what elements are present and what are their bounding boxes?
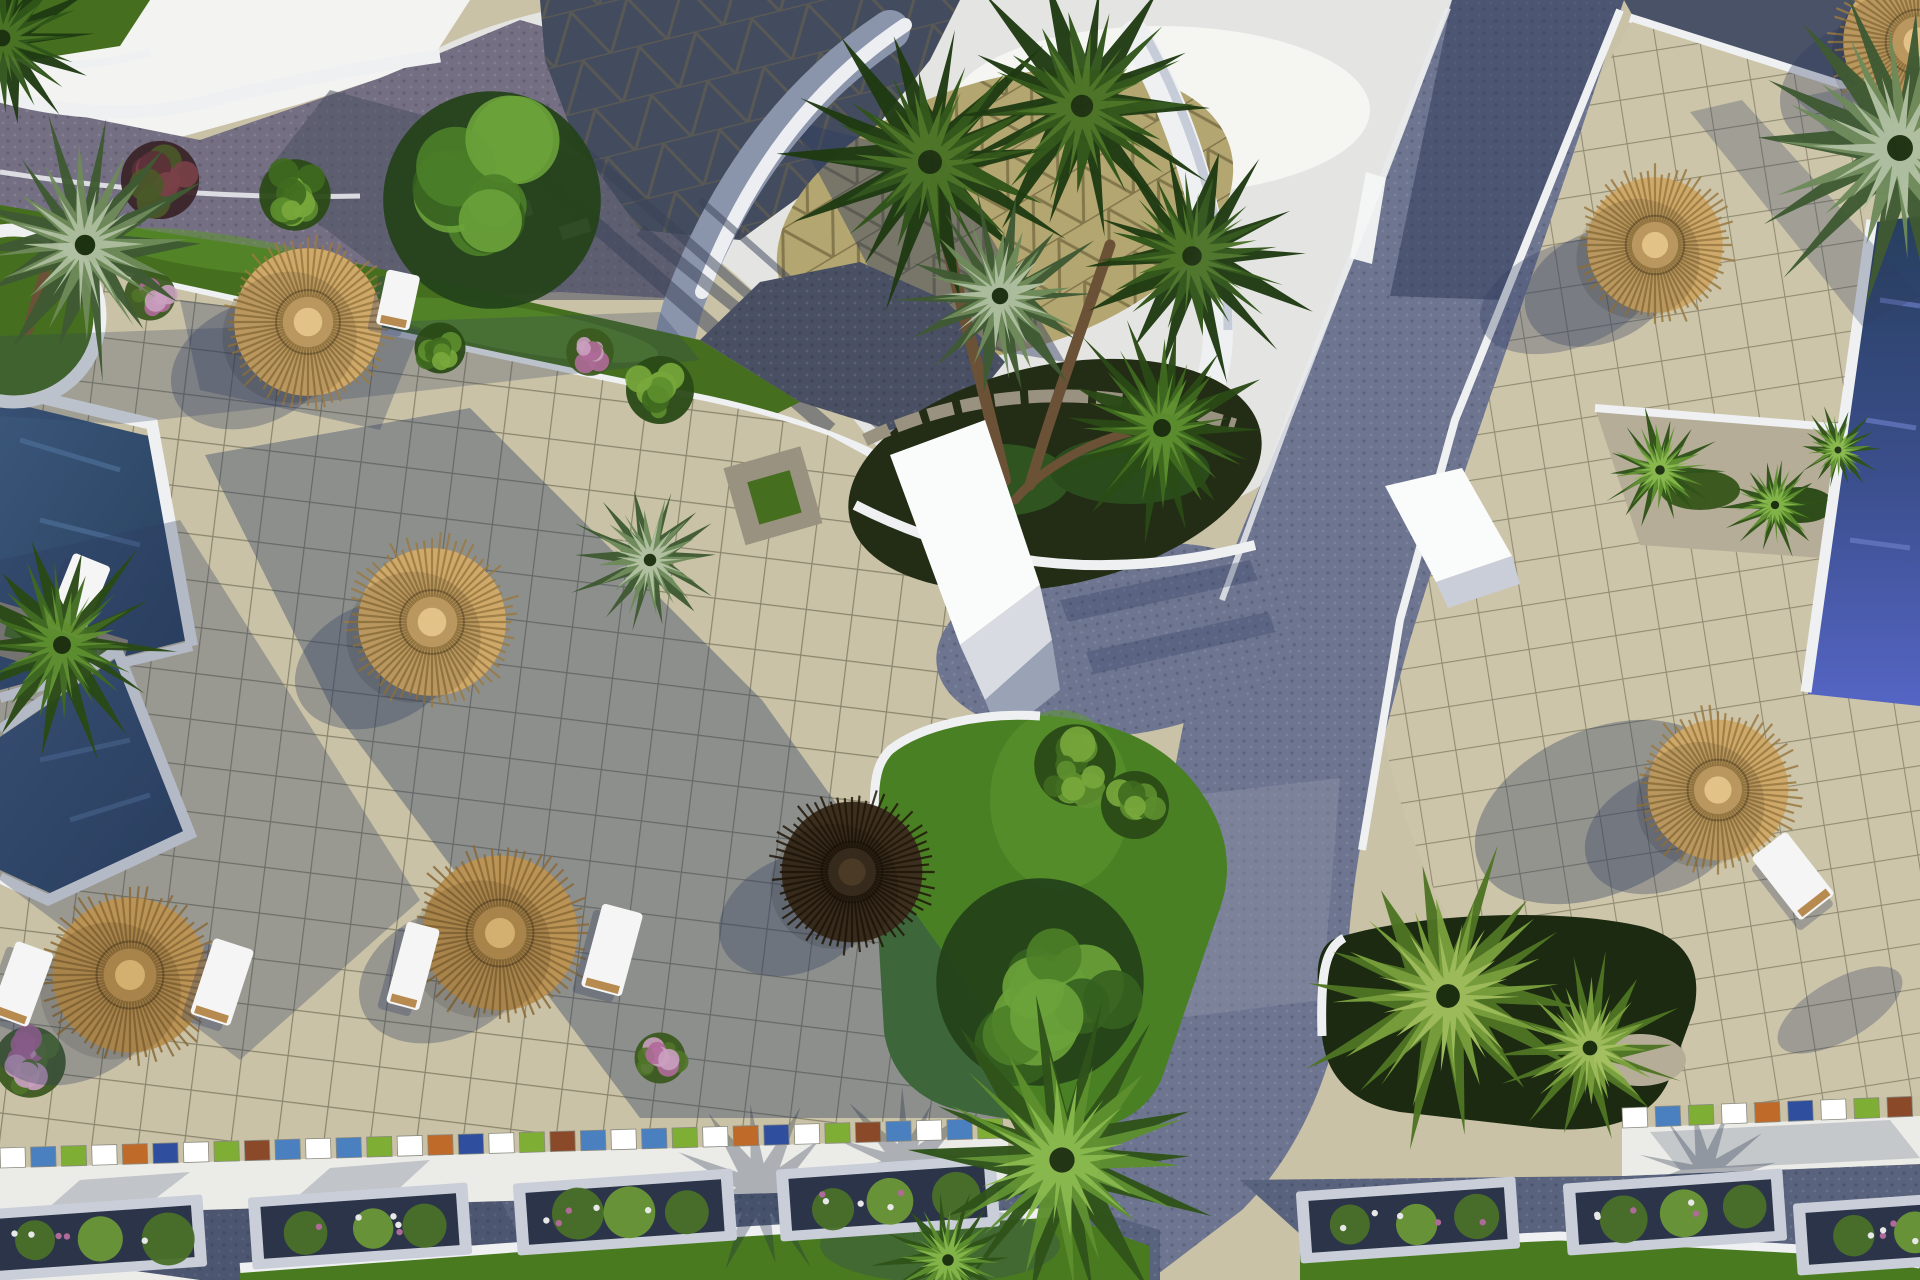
- mosaic-tile: [0, 1147, 26, 1168]
- shrub: [415, 323, 466, 374]
- mosaic-tile: [947, 1119, 973, 1140]
- mosaic-tile: [336, 1137, 362, 1158]
- shrub: [566, 328, 614, 376]
- shrub: [1101, 771, 1169, 839]
- mosaic-tile: [703, 1126, 729, 1147]
- flower-planter: [1563, 1168, 1787, 1255]
- flower-planter: [776, 1154, 1000, 1241]
- mosaic-tile: [886, 1121, 912, 1142]
- mosaic-tile: [1622, 1107, 1648, 1128]
- mosaic-tile: [825, 1123, 851, 1144]
- shrub: [936, 878, 1143, 1086]
- flower-planter: [248, 1182, 472, 1269]
- shrub: [259, 158, 330, 231]
- mosaic-tile: [1721, 1103, 1747, 1124]
- flower-planter: [0, 1194, 207, 1280]
- mosaic-tile: [1821, 1099, 1847, 1120]
- mosaic-tile: [1655, 1106, 1681, 1127]
- mosaic-tile: [916, 1120, 942, 1141]
- mosaic-tile: [641, 1128, 667, 1149]
- mosaic-tile: [489, 1133, 515, 1154]
- mosaic-tile: [122, 1144, 148, 1165]
- mosaic-tile: [1754, 1102, 1780, 1123]
- mosaic-tile: [214, 1141, 240, 1162]
- mosaic-tile: [1887, 1096, 1913, 1117]
- mosaic-tile: [764, 1125, 790, 1146]
- mosaic-tile: [305, 1138, 331, 1159]
- mosaic-tile: [367, 1136, 393, 1157]
- flower-planter: [1296, 1176, 1520, 1263]
- mosaic-tile: [519, 1132, 545, 1153]
- mosaic-tile: [428, 1135, 454, 1156]
- aerial-render-stage: Aerial 3D architectural rendering of a r…: [0, 0, 1920, 1280]
- mosaic-tile: [1688, 1104, 1714, 1125]
- flower-planter: [513, 1168, 737, 1255]
- mosaic-tile: [31, 1146, 57, 1167]
- mosaic-tile: [580, 1130, 606, 1151]
- mosaic-tile: [550, 1131, 576, 1152]
- mosaic-tile: [275, 1139, 301, 1160]
- mosaic-tile: [153, 1143, 179, 1164]
- mosaic-tile: [458, 1134, 484, 1155]
- mosaic-tile: [733, 1125, 759, 1146]
- mosaic-tile: [92, 1145, 118, 1166]
- mosaic-tile: [1854, 1098, 1880, 1119]
- mosaic-tile: [672, 1127, 698, 1148]
- mosaic-tile: [1788, 1100, 1814, 1121]
- mosaic-tile: [183, 1142, 209, 1163]
- mosaic-tile: [611, 1129, 637, 1150]
- mosaic-tile: [397, 1135, 423, 1156]
- mosaic-tile: [794, 1124, 820, 1145]
- mosaic-tile: [244, 1140, 270, 1161]
- aerial-resort-render: Aerial 3D architectural rendering of a r…: [0, 0, 1920, 1280]
- mosaic-tile: [855, 1122, 881, 1143]
- mosaic-tile: [61, 1145, 87, 1166]
